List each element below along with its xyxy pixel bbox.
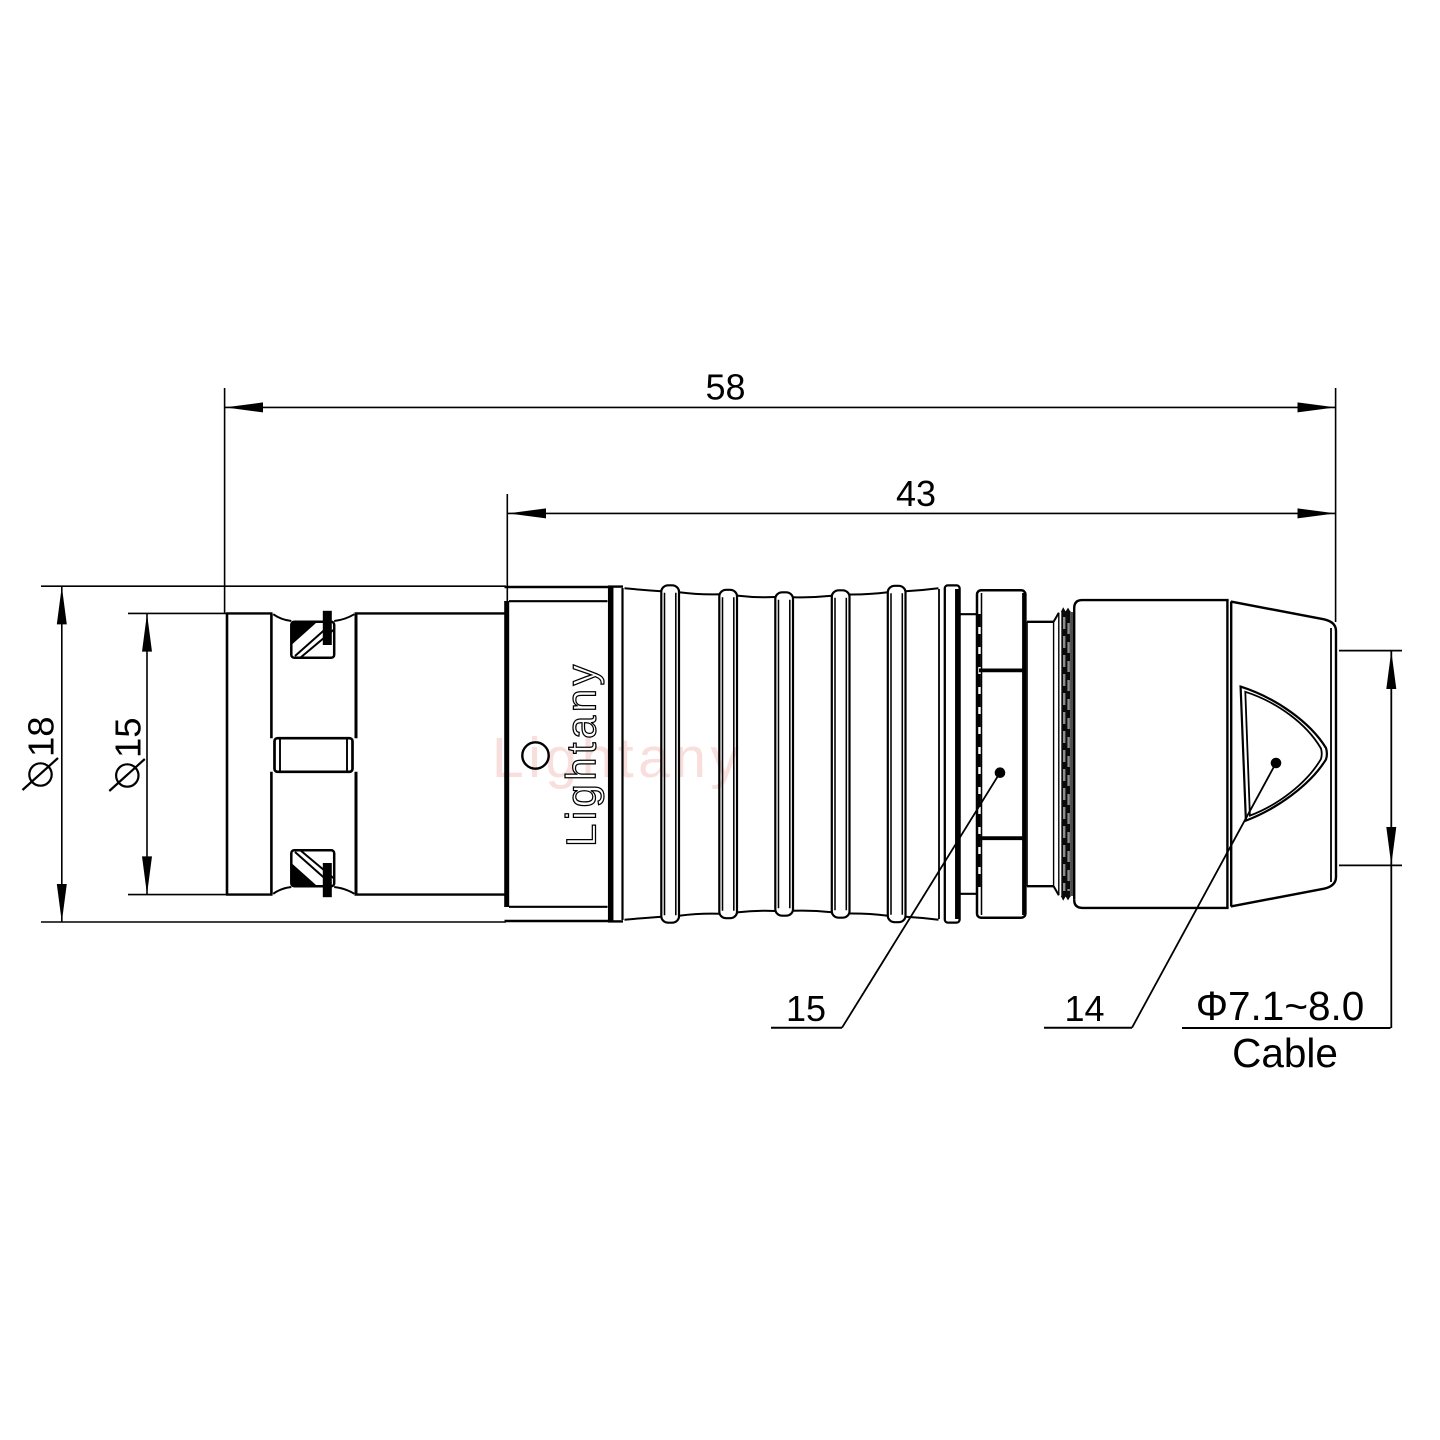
svg-text:15: 15	[107, 717, 148, 758]
svg-text:14: 14	[1064, 988, 1104, 1029]
svg-text:43: 43	[896, 473, 936, 514]
svg-text:Cable: Cable	[1232, 1030, 1338, 1076]
svg-text:18: 18	[21, 716, 62, 757]
svg-text:15: 15	[786, 988, 826, 1029]
svg-text:58: 58	[705, 367, 745, 408]
svg-text:Lightany: Lightany	[492, 726, 744, 790]
svg-text:Φ7.1~8.0: Φ7.1~8.0	[1196, 983, 1365, 1029]
svg-text:Lightany: Lightany	[558, 661, 605, 847]
